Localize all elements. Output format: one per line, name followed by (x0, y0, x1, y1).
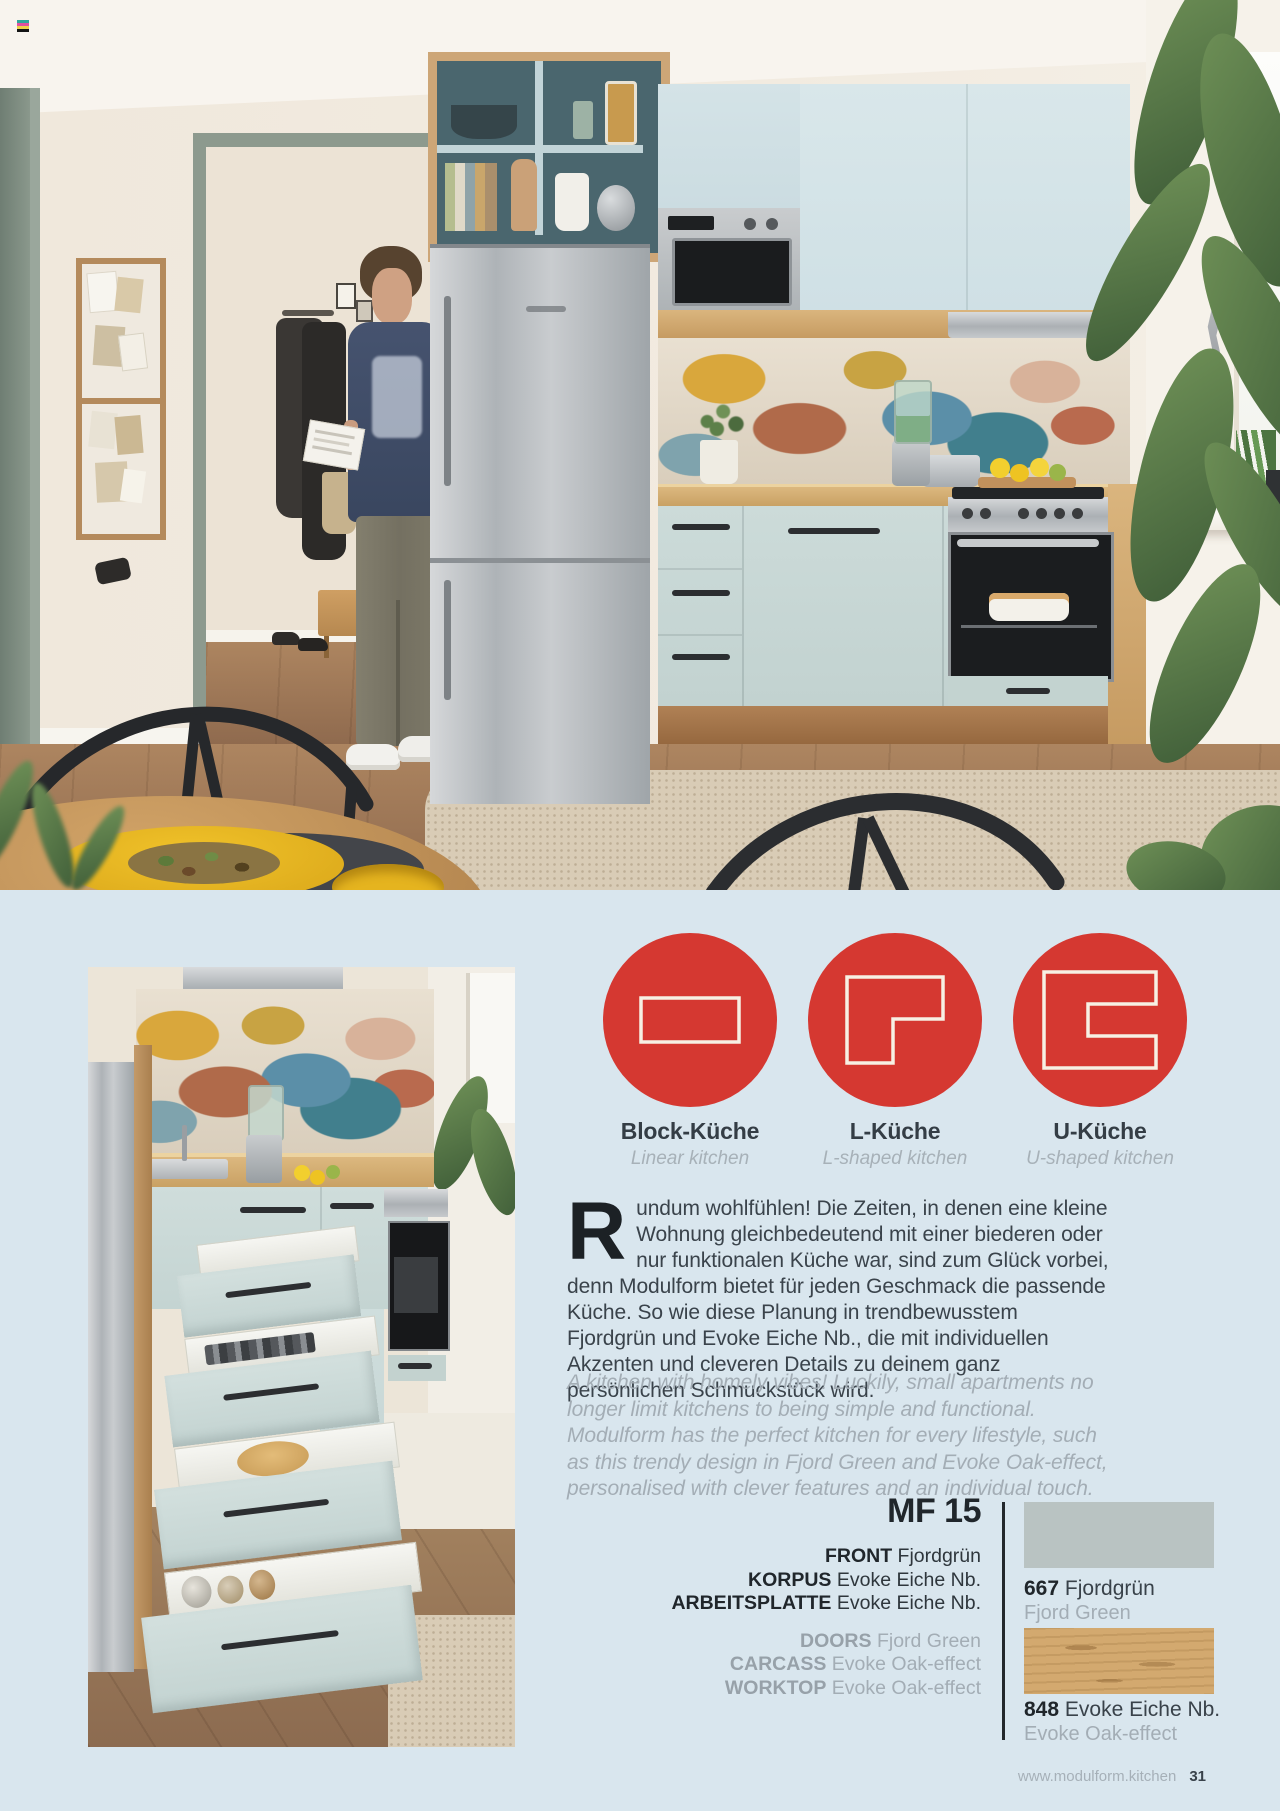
swatch-fjordgruen (1024, 1502, 1214, 1568)
plate-food (128, 842, 280, 884)
catalog-page: Block-Küche Linear kitchen L-Küche L-sha… (0, 0, 1280, 1811)
swatch-oak (1024, 1628, 1214, 1694)
kitchen-type-label: U-Küche (980, 1118, 1220, 1145)
hero-kitchen-photo (0, 0, 1280, 890)
product-code: MF 15 (560, 1492, 981, 1531)
spec-row-doors: DOORS Fjord Green (560, 1630, 981, 1654)
detail-blender-base (246, 1135, 282, 1183)
spec-row-front: FRONT Fjordgrün (560, 1545, 981, 1569)
dropcap: R (567, 1200, 626, 1264)
detail-lime (326, 1165, 340, 1179)
detail-blender-jar (248, 1085, 284, 1141)
spec-divider (1002, 1502, 1005, 1740)
detail-sink (146, 1159, 228, 1179)
wishbone-chairs (0, 0, 1280, 890)
spec-row-korpus: KORPUS Evoke Eiche Nb. (560, 1569, 981, 1593)
kitchen-type-sublabel: Linear kitchen (570, 1148, 810, 1170)
kitchen-type-sublabel: U-shaped kitchen (980, 1148, 1220, 1170)
u-kitchen-icon (1013, 933, 1187, 1107)
detail-lemon (310, 1170, 325, 1185)
product-spec-block: MF 15 FRONT Fjordgrün KORPUS Evoke Eiche… (560, 1492, 981, 1700)
detail-backsplash (136, 989, 434, 1155)
kitchen-type-label: L-Küche (775, 1118, 1015, 1145)
detail-drawers-photo (88, 967, 515, 1747)
spec-row-worktop: WORKTOP Evoke Oak-effect (560, 1677, 981, 1701)
intro-paragraph-en: A kitchen with homely vibes! Luckily, sm… (567, 1370, 1115, 1503)
footer: www.modulform.kitchen 31 (900, 1768, 1206, 1785)
kitchen-type-sublabel: L-shaped kitchen (775, 1148, 1015, 1170)
swatch-oak-name-en: Evoke Oak-effect (1024, 1723, 1244, 1746)
detail-faucet (182, 1125, 187, 1161)
block-kitchen-icon (603, 933, 777, 1107)
detail-lemon (294, 1165, 310, 1181)
detail-fridge (88, 1062, 134, 1672)
detail-plinth-wall (384, 1413, 515, 1529)
swatch-fjordgruen-code: 667 Fjordgrün (1024, 1577, 1224, 1601)
page-number: 31 (1189, 1768, 1206, 1785)
detail-wood-post (134, 1045, 152, 1669)
swatch-oak-code: 848 Evoke Eiche Nb. (1024, 1698, 1244, 1722)
kitchen-type-label: Block-Küche (570, 1118, 810, 1145)
footer-url[interactable]: www.modulform.kitchen (1018, 1768, 1176, 1785)
swatch-fjordgruen-name-en: Fjord Green (1024, 1602, 1224, 1625)
cmyk-print-mark (17, 20, 29, 33)
spec-row-carcass: CARCASS Evoke Oak-effect (560, 1653, 981, 1677)
l-kitchen-icon (808, 933, 982, 1107)
spec-row-arbeitsplatte: ARBEITSPLATTE Evoke Eiche Nb. (560, 1592, 981, 1616)
